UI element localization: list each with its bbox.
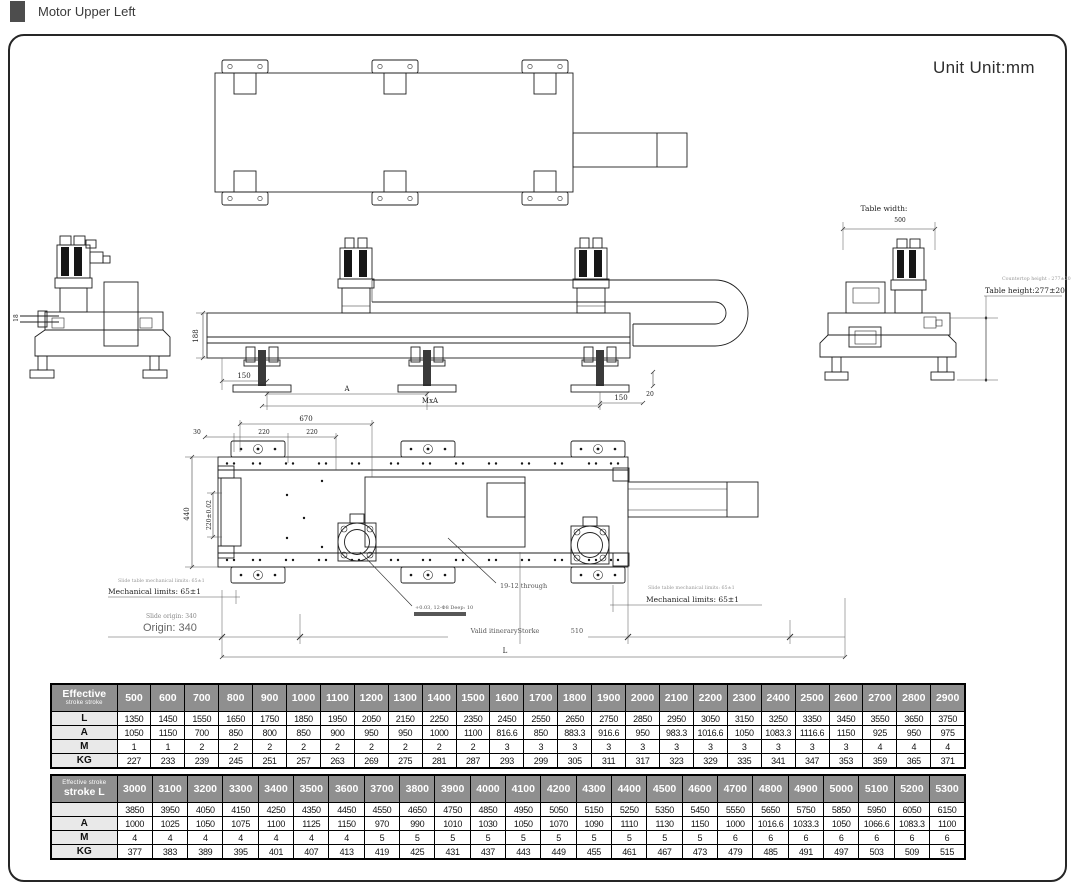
table-cell: 5250 [612,803,647,817]
table-cell: 371 [931,754,965,769]
table-cell: 3 [727,740,761,754]
column-header: 2400 [761,684,795,712]
table-cell: 1150 [829,726,863,740]
elevation-motor-1 [338,238,374,313]
slot-dim: 220±0.02 [206,500,213,530]
table-cell: 3 [761,740,795,754]
table-cell: 4750 [435,803,470,817]
table-cell: 3450 [829,712,863,726]
top-view-mount-tabs [222,60,568,205]
table-cell: 3850 [117,803,152,817]
table-cell: 5 [506,831,541,845]
table-cell: 850 [287,726,321,740]
stroke-header-cell: Effectivestroke stroke [51,684,117,712]
table-cell: 2 [422,740,456,754]
table-cell: 4850 [470,803,505,817]
table-cell: 6 [824,831,859,845]
table-cell: 359 [863,754,897,769]
table-cell: 5 [541,831,576,845]
table-row: A105011507008508008509009509501000110081… [51,726,965,740]
table-cell: 5050 [541,803,576,817]
table-cell: 1650 [219,712,253,726]
table-cell: 389 [188,845,223,860]
table-cell: 4150 [223,803,258,817]
mechanical-limits-right: Mechanical limits: 65±1 [646,595,739,604]
table-cell: 3350 [795,712,829,726]
table-cell: 1050 [824,817,859,831]
right-offset-dim: 150 [614,394,627,402]
table-cell: 311 [592,754,626,769]
column-header: 500 [117,684,151,712]
total-length-dim: L [503,647,508,655]
slide-limits-note-right: Slide table mechanical limits: 65±1 [648,585,735,591]
table-width-label: Table width: [861,204,908,213]
table-cell: 800 [253,726,287,740]
table-cell: 3650 [897,712,931,726]
table-cell: 2 [388,740,422,754]
column-header: 1200 [354,684,388,712]
table-cell: 4050 [188,803,223,817]
bottom-view: 670 30 220 220 440 220±0.02 19-12 throug… [108,415,845,657]
table-cell: 3250 [761,712,795,726]
table-cell: 5950 [859,803,894,817]
table-cell: 2 [185,740,219,754]
table-cell: 4450 [329,803,364,817]
origin-label: Origin: 340 [143,622,197,634]
table-cell: 5 [576,831,611,845]
table-cell: 1083.3 [894,817,929,831]
table-cell: 883.3 [558,726,592,740]
table-cell: 6 [859,831,894,845]
table-cell: 251 [253,754,287,769]
valid-stroke-label: Valid itineraryStorke [470,627,540,635]
table-cell: 437 [470,845,505,860]
table-cell: 491 [788,845,823,860]
table-cell: 6 [718,831,753,845]
table-cell: 4 [223,831,258,845]
column-header: 3300 [223,775,258,803]
table-cell: 329 [693,754,727,769]
table-cell: 1075 [223,817,258,831]
table-cell: 275 [388,754,422,769]
table-cell: 497 [824,845,859,860]
table-cell: 5 [364,831,399,845]
table-cell: 1090 [576,817,611,831]
table-cell: 1125 [294,817,329,831]
table-cell: 281 [422,754,456,769]
table-cell: 353 [829,754,863,769]
table-cell: 3 [795,740,829,754]
table-width-dimension: Table width: 500 [843,204,935,250]
table-cell: 233 [151,754,185,769]
table-cell: 257 [287,754,321,769]
table-cell: 509 [894,845,929,860]
column-header: 2100 [660,684,694,712]
top-view [215,60,687,205]
left-end-view: 18 [13,236,170,378]
column-header: 4400 [612,775,647,803]
table-cell: 2450 [490,712,524,726]
bottom-view-body [218,457,628,567]
table-cell: 2850 [626,712,660,726]
table-cell: 1110 [612,817,647,831]
table-cell: 1050 [506,817,541,831]
through-holes-note: 19-12 through [500,582,547,590]
bottom-view-bottom-dimensions: Valid itineraryStorke 510 L [108,552,845,657]
table-cell: 2250 [422,712,456,726]
table-cell: 2 [354,740,388,754]
table-cell: 5850 [824,803,859,817]
bottom-view-mount-tabs [231,441,625,583]
table-height-label: Table height:277±20 [985,286,1065,295]
table-cell: 503 [859,845,894,860]
column-header: 3000 [117,775,152,803]
table-cell: 1000 [117,817,152,831]
table-cell: 5150 [576,803,611,817]
column-header: 2500 [795,684,829,712]
table-cell: 3 [490,740,524,754]
column-header: 2200 [693,684,727,712]
table-cell: 950 [388,726,422,740]
table-cell: 5 [400,831,435,845]
bottom-view-left-dimensions: 440 220±0.02 [183,457,222,567]
table-cell: 2 [320,740,354,754]
bottom-view-notes: 19-12 through +0.03, 12-Φ8 Deep: 10 Slid… [108,538,762,634]
table-cell: 900 [320,726,354,740]
table-cell: 365 [897,754,931,769]
column-header: 2000 [626,684,660,712]
table-cell: 950 [626,726,660,740]
table-cell: 1030 [470,817,505,831]
table-cell: 3950 [152,803,187,817]
table-row: KG22723323924525125726326927528128729329… [51,754,965,769]
pin-holes-note: +0.03, 12-Φ8 Deep: 10 [415,605,473,611]
table-cell: 4 [294,831,329,845]
table-cell: 1066.6 [859,817,894,831]
table-cell: 1100 [930,817,965,831]
table-cell: 383 [152,845,187,860]
column-header: 4800 [753,775,788,803]
table-cell: 1033.3 [788,817,823,831]
table-cell: 2350 [456,712,490,726]
top-view-body [215,73,573,192]
table-width-value: 500 [894,217,906,224]
column-header: 700 [185,684,219,712]
table-height-dimension: Countertop height : 277±20 Table height:… [950,276,1071,380]
row-label: L [51,712,117,726]
table-cell: 431 [435,845,470,860]
column-header: 5100 [859,775,894,803]
table-cell: 5350 [647,803,682,817]
column-header: 3400 [258,775,293,803]
table-cell: 1016.6 [753,817,788,831]
table-cell: 1100 [258,817,293,831]
column-header: 5300 [930,775,965,803]
table-cell: 1000 [718,817,753,831]
column-header: 900 [253,684,287,712]
slide-limits-note-left: Slide table mechanical limits: 65±1 [118,578,205,584]
table-cell: 990 [400,817,435,831]
table-cell: 455 [576,845,611,860]
bottom-view-extension-arm [613,468,758,566]
column-header: 1700 [524,684,558,712]
column-header: 4900 [788,775,823,803]
table-cell: 916.6 [592,726,626,740]
header-row: Effective strokestroke L3000310032003300… [51,775,965,803]
table-cell: 6050 [894,803,929,817]
row-label: A [51,726,117,740]
stroke-header-cell: Effective strokestroke L [51,775,117,803]
table-cell: 3 [693,740,727,754]
table-cell: 3 [829,740,863,754]
right-end-view: Table width: 500 Countertop h [820,204,1071,380]
table-cell: 299 [524,754,558,769]
smudged-note-bar [414,612,466,616]
table-cell: 5 [435,831,470,845]
column-header: 2900 [931,684,965,712]
table-cell: 1010 [435,817,470,831]
column-header: 5000 [824,775,859,803]
table-cell: 1750 [253,712,287,726]
column-header: 2600 [829,684,863,712]
column-header: 4000 [470,775,505,803]
table-cell: 1150 [329,817,364,831]
table-cell: 4 [897,740,931,754]
table-cell: 4350 [294,803,329,817]
table-cell: 4 [117,831,152,845]
column-header: 4100 [506,775,541,803]
table-cell: 1950 [320,712,354,726]
mechanical-limits-left: Mechanical limits: 65±1 [108,587,201,596]
table-cell: 950 [354,726,388,740]
row-label [51,803,117,817]
column-header: 2300 [727,684,761,712]
table-cell: 317 [626,754,660,769]
table-cell: 2550 [524,712,558,726]
table-cell: 2650 [558,712,592,726]
table-row: 3850395040504150425043504450455046504750… [51,803,965,817]
table-cell: 6 [930,831,965,845]
table-cell: 5 [682,831,717,845]
column-header: 3900 [435,775,470,803]
table-cell: 1 [117,740,151,754]
header-row: Effectivestroke stroke500600700800900100… [51,684,965,712]
table-cell: 407 [294,845,329,860]
table-cell: 3 [660,740,694,754]
table-row: M1122222222233333333333444 [51,740,965,754]
column-header: 1000 [287,684,321,712]
table-cell: 6 [894,831,929,845]
column-header: 2800 [897,684,931,712]
table-cell: 419 [364,845,399,860]
table-cell: 816.6 [490,726,524,740]
column-header: 3600 [329,775,364,803]
table-cell: 1 [151,740,185,754]
edge-dim: 30 [193,429,201,436]
table-cell: 850 [219,726,253,740]
table-cell: 3 [626,740,660,754]
column-header: 1300 [388,684,422,712]
elevation-view: 188 150 A MxA 150 20 [192,238,748,410]
column-header: 4600 [682,775,717,803]
column-header: 4300 [576,775,611,803]
table-cell: 401 [258,845,293,860]
column-header: 1900 [592,684,626,712]
table-cell: 5 [612,831,647,845]
table-cell: 461 [612,845,647,860]
table-cell: 1116.6 [795,726,829,740]
elevation-rail [207,313,630,358]
row-label: M [51,831,117,845]
column-header: 1600 [490,684,524,712]
shaft-dim-label: 18 [13,314,20,322]
table-cell: 1025 [152,817,187,831]
column-header: 800 [219,684,253,712]
slide-origin-note: Slide origin: 340 [146,613,197,620]
table-cell: 925 [863,726,897,740]
table-cell: 6 [753,831,788,845]
row-label: A [51,817,117,831]
table-cell: 1130 [647,817,682,831]
width-dim: 440 [183,507,191,520]
table-cell: 323 [660,754,694,769]
table-cell: 850 [524,726,558,740]
column-header: 2700 [863,684,897,712]
column-header: 3500 [294,775,329,803]
top-view-extension-arm [573,133,687,167]
column-header: 5200 [894,775,929,803]
table-cell: 1550 [185,712,219,726]
table-cell: 3750 [931,712,965,726]
table-cell: 2 [219,740,253,754]
table-cell: 6150 [930,803,965,817]
table-cell: 4 [152,831,187,845]
table-cell: 1350 [117,712,151,726]
table-cell: 341 [761,754,795,769]
table-cell: 4 [258,831,293,845]
column-header: 3800 [400,775,435,803]
table-cell: 3 [558,740,592,754]
rail-height-dim: 188 [192,329,200,342]
table-cell: 5 [647,831,682,845]
table-cell: 983.3 [660,726,694,740]
table-cell: 413 [329,845,364,860]
row-label: M [51,740,117,754]
table-cell: 449 [541,845,576,860]
column-header: 4700 [718,775,753,803]
table-cell: 239 [185,754,219,769]
slide-table [286,477,525,548]
table-cell: 1000 [422,726,456,740]
motor-flange-2 [571,517,609,564]
table-cell: 4250 [258,803,293,817]
table-cell: 2 [456,740,490,754]
right-view-base [820,313,956,380]
table-cell: 1050 [727,726,761,740]
column-header: 3200 [188,775,223,803]
table-cell: 950 [897,726,931,740]
table-cell: 3 [524,740,558,754]
column-header: 600 [151,684,185,712]
left-offset-dim: 150 [237,372,250,380]
support-feet [233,347,629,392]
table-cell: 1016.6 [693,726,727,740]
table-cell: 3050 [693,712,727,726]
table-cell: 515 [930,845,965,860]
table-cell: 227 [117,754,151,769]
table-row: L135014501550165017501850195020502150225… [51,712,965,726]
table-cell: 5750 [788,803,823,817]
hole-pitch-dim-2: 220 [306,429,318,436]
table-cell: 1150 [682,817,717,831]
countertop-height-note: Countertop height : 277±20 [1002,276,1071,282]
column-header: 1100 [320,684,354,712]
table-cell: 443 [506,845,541,860]
left-view-column-box [104,282,138,346]
table-cell: 287 [456,754,490,769]
table-cell: 1100 [456,726,490,740]
table-cell: 3150 [727,712,761,726]
hole-pitch-dim-1: 220 [258,429,270,436]
table-cell: 3 [592,740,626,754]
table-cell: 1850 [287,712,321,726]
total-top-dim: 670 [299,415,312,423]
column-header: 1400 [422,684,456,712]
table-cell: 4950 [506,803,541,817]
table-cell: 4 [329,831,364,845]
table-cell: 2 [253,740,287,754]
table-cell: 1450 [151,712,185,726]
table-cell: 347 [795,754,829,769]
table-row: M444444455555555556666666 [51,831,965,845]
stroke-table-500-2900: Effectivestroke stroke500600700800900100… [50,683,966,769]
step-dim: 20 [646,391,654,398]
column-header: 4500 [647,775,682,803]
table-cell: 4 [863,740,897,754]
table-cell: 2150 [388,712,422,726]
column-header: 3700 [364,775,399,803]
column-header: 1500 [456,684,490,712]
table-cell: 5 [470,831,505,845]
bottom-view-left-details [218,466,241,558]
table-cell: 4550 [364,803,399,817]
table-cell: 2 [287,740,321,754]
column-header: 1800 [558,684,592,712]
bottom-view-top-dimensions: 670 30 220 220 [193,415,372,477]
table-cell: 293 [490,754,524,769]
table-cell: 377 [117,845,152,860]
table-cell: 4650 [400,803,435,817]
stroke-table-3000-5300: Effective strokestroke L3000310032003300… [50,774,966,860]
table-cell: 5550 [718,803,753,817]
shaft-flange [38,311,47,327]
table-cell: 2750 [592,712,626,726]
left-view-motor [55,236,110,312]
table-cell: 5450 [682,803,717,817]
table-cell: 1150 [151,726,185,740]
table-cell: 4 [188,831,223,845]
table-cell: 1070 [541,817,576,831]
table-cell: 263 [320,754,354,769]
table-cell: 485 [753,845,788,860]
row-label: KG [51,845,117,860]
table-cell: 245 [219,754,253,769]
table-cell: 6 [788,831,823,845]
table-cell: 479 [718,845,753,860]
table-cell: 425 [400,845,435,860]
table-cell: 1050 [188,817,223,831]
table-cell: 975 [931,726,965,740]
